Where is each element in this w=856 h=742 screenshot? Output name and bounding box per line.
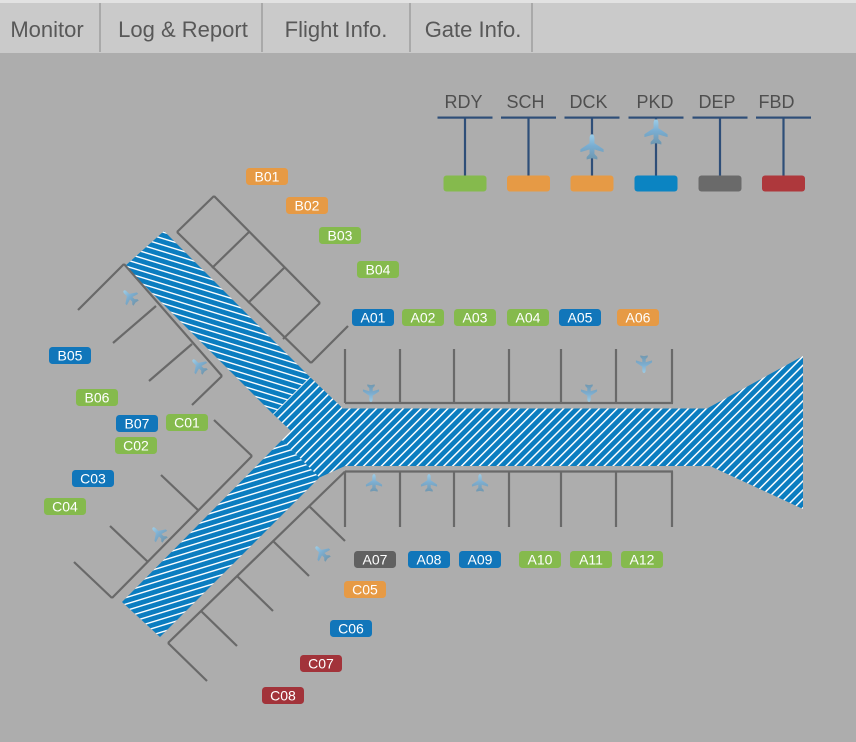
svg-text:A11: A11	[579, 552, 603, 568]
svg-text:B02: B02	[295, 198, 320, 214]
svg-text:B05: B05	[58, 348, 83, 364]
svg-text:FBD: FBD	[759, 92, 795, 112]
svg-text:B07: B07	[125, 416, 150, 432]
svg-text:A04: A04	[516, 310, 541, 326]
svg-text:C08: C08	[270, 688, 296, 704]
svg-text:SCH: SCH	[506, 92, 544, 112]
svg-text:DEP: DEP	[698, 92, 735, 112]
svg-text:RDY: RDY	[444, 92, 482, 112]
svg-text:DCK: DCK	[569, 92, 607, 112]
svg-text:A09: A09	[468, 552, 493, 568]
svg-text:A12: A12	[630, 552, 655, 568]
svg-text:Gate Info.: Gate Info.	[425, 17, 522, 42]
svg-text:C06: C06	[338, 621, 364, 637]
svg-text:B04: B04	[366, 262, 391, 278]
svg-text:C04: C04	[52, 499, 78, 515]
svg-text:C02: C02	[123, 438, 149, 454]
svg-text:A02: A02	[411, 310, 436, 326]
svg-text:Log & Report: Log & Report	[118, 17, 248, 42]
svg-text:A08: A08	[417, 552, 442, 568]
svg-text:C03: C03	[80, 471, 106, 487]
svg-text:Monitor: Monitor	[10, 17, 83, 42]
svg-text:A10: A10	[528, 552, 553, 568]
svg-text:B01: B01	[255, 169, 280, 185]
svg-text:C07: C07	[308, 656, 334, 672]
svg-text:B06: B06	[85, 390, 110, 406]
svg-text:C01: C01	[174, 415, 200, 431]
svg-text:A01: A01	[361, 310, 386, 326]
svg-text:Flight Info.: Flight Info.	[285, 17, 388, 42]
svg-text:A05: A05	[568, 310, 593, 326]
svg-text:A03: A03	[463, 310, 488, 326]
svg-text:C05: C05	[352, 582, 378, 598]
svg-text:A06: A06	[626, 310, 651, 326]
svg-text:PKD: PKD	[636, 92, 673, 112]
svg-text:B03: B03	[328, 228, 353, 244]
svg-text:A07: A07	[363, 552, 388, 568]
